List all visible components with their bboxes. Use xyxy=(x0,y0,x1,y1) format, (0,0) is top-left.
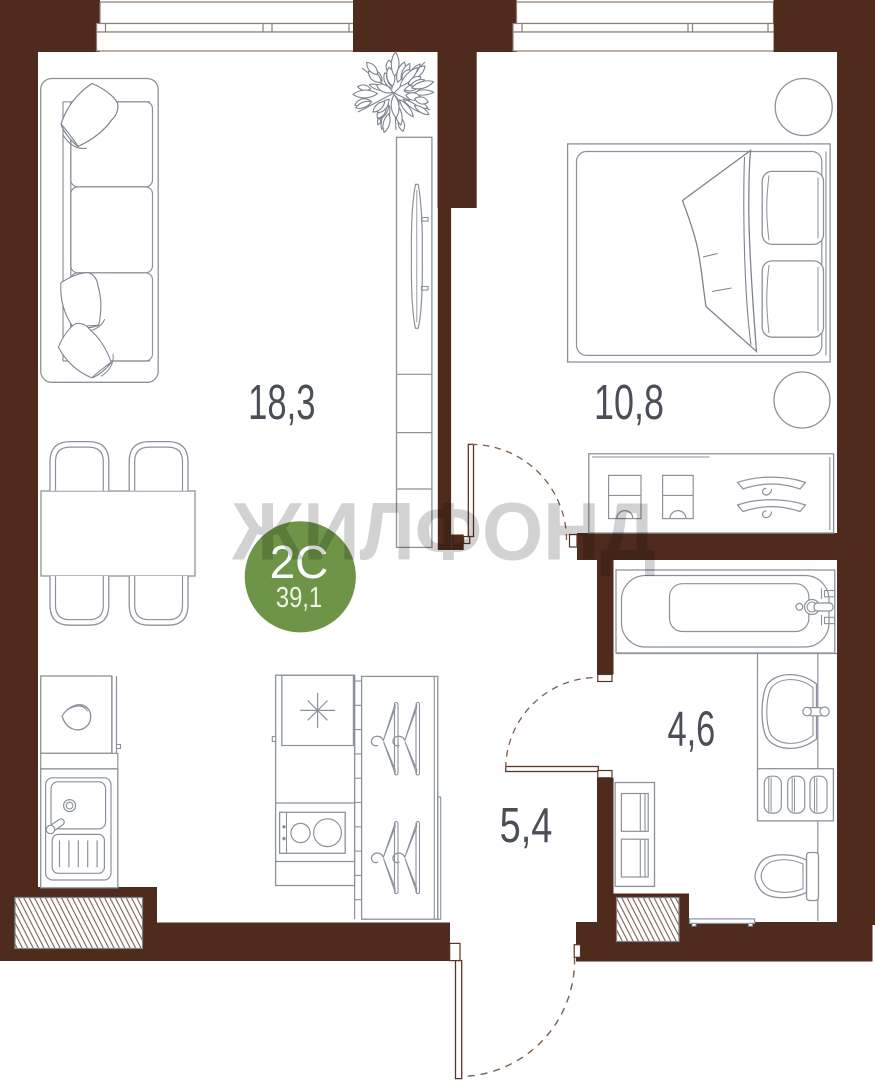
svg-text:18,3: 18,3 xyxy=(248,376,315,430)
svg-text:4,6: 4,6 xyxy=(668,703,716,757)
svg-text:ЖИЛФОНД: ЖИЛФОНД xyxy=(231,487,656,578)
svg-text:39,1: 39,1 xyxy=(276,582,322,614)
svg-text:5,4: 5,4 xyxy=(500,799,553,853)
svg-text:10,8: 10,8 xyxy=(594,376,664,430)
